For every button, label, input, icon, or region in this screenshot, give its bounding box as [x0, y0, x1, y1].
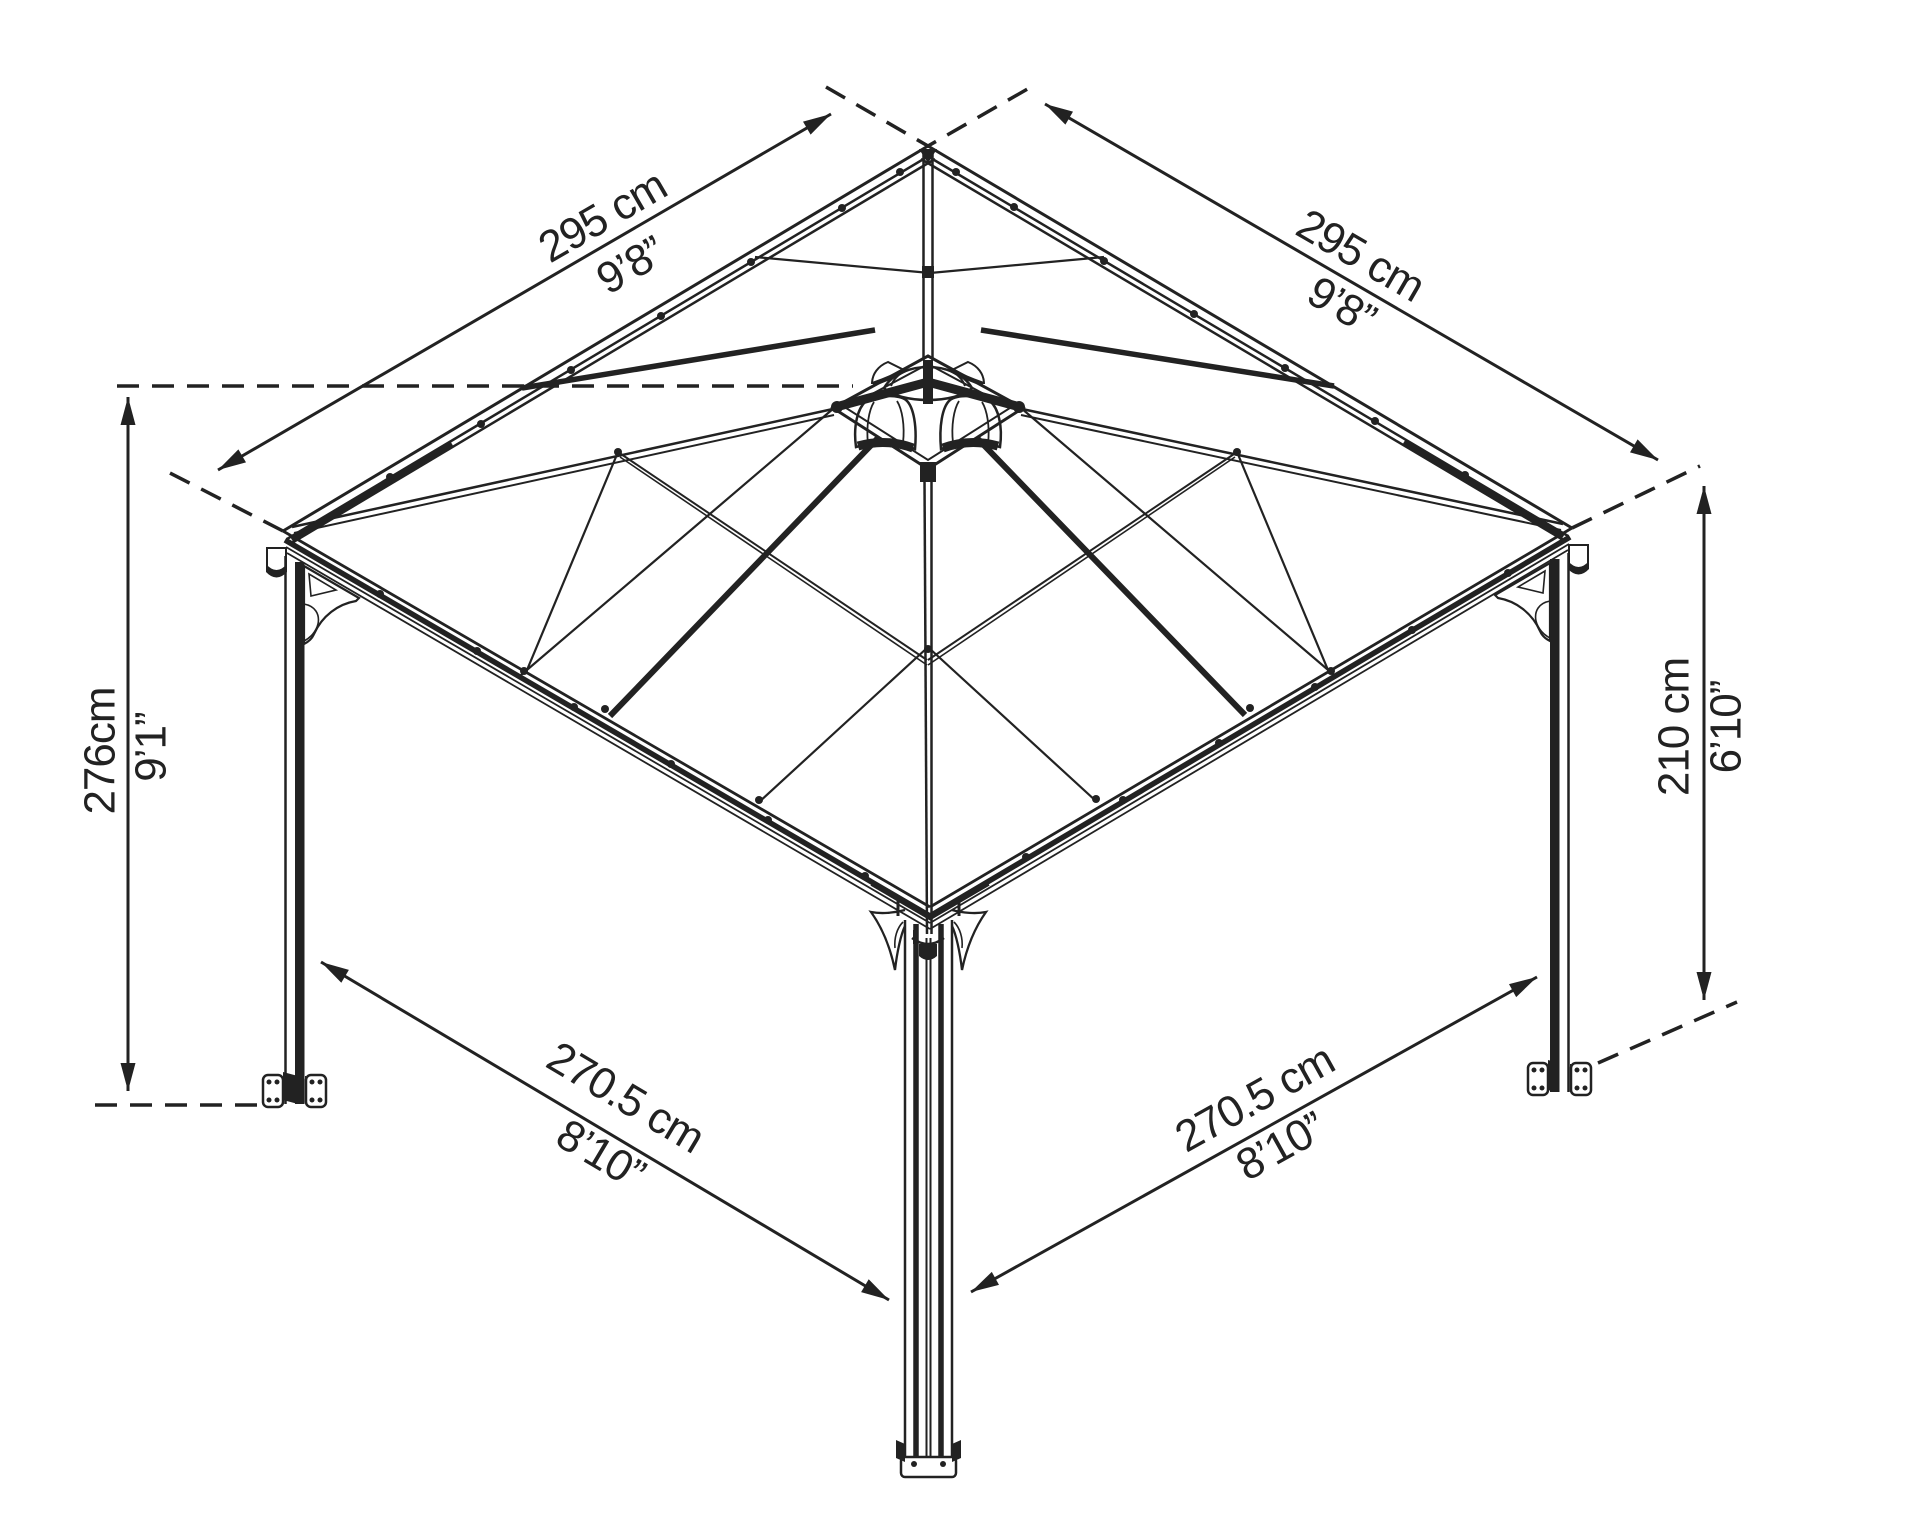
svg-text:276cm: 276cm — [76, 687, 125, 814]
svg-text:210 cm: 210 cm — [1650, 658, 1699, 796]
svg-text:9’1”: 9’1” — [127, 712, 176, 782]
svg-text:6’10”: 6’10” — [1702, 680, 1751, 773]
